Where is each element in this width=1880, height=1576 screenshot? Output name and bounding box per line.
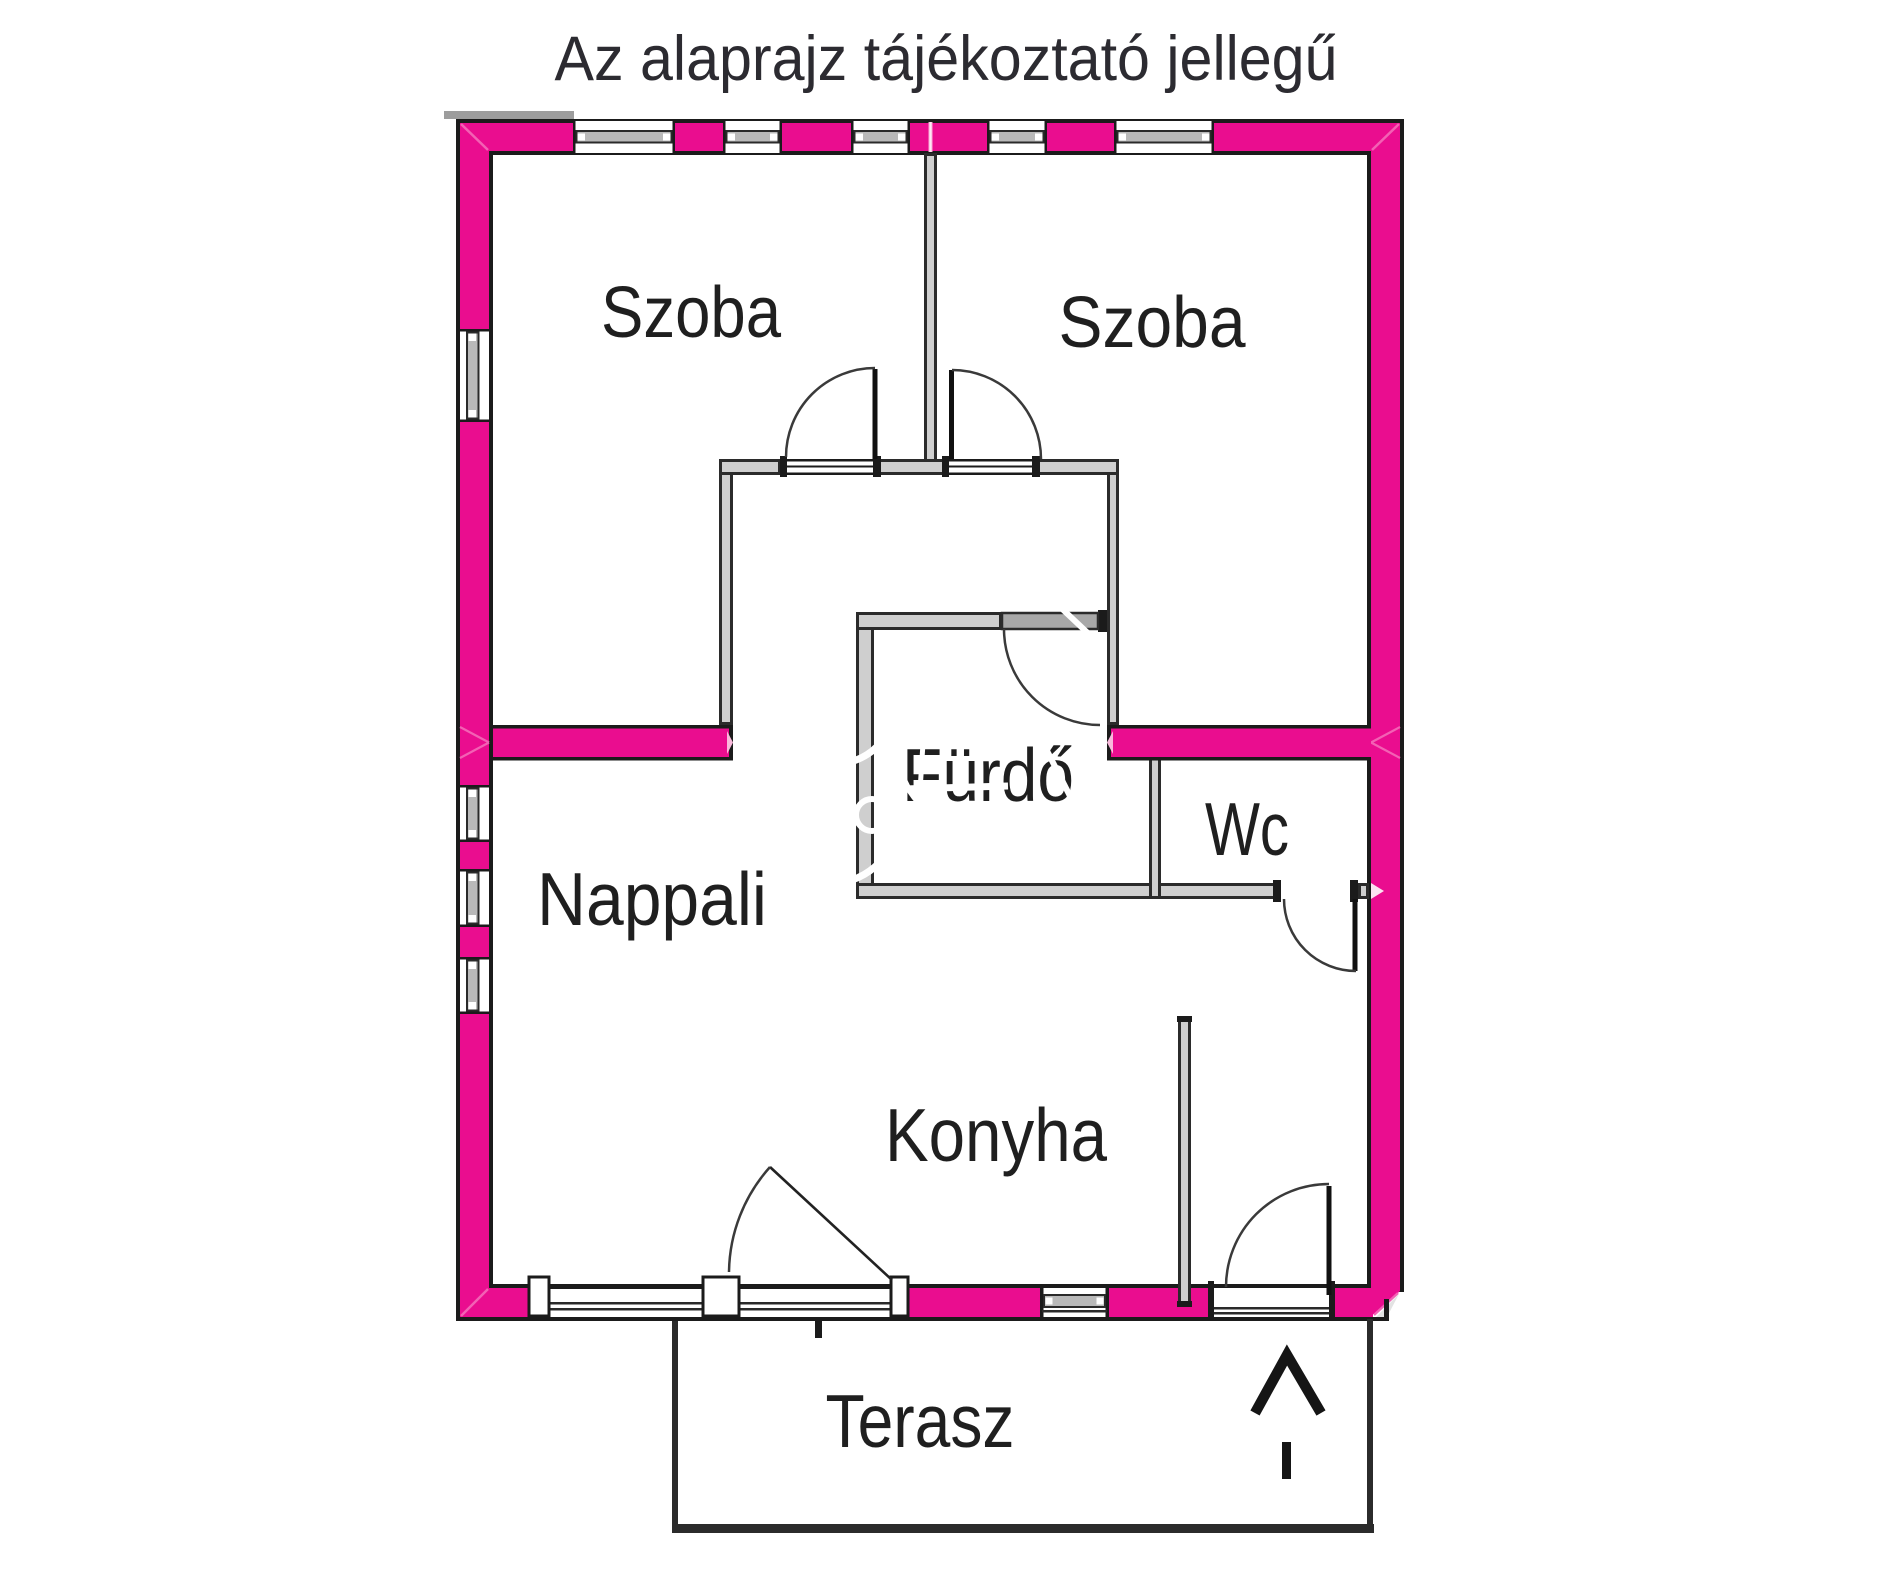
svg-text:Konyha: Konyha [885, 1093, 1107, 1177]
svg-text:Szoba: Szoba [1059, 283, 1247, 363]
svg-text:Szoba: Szoba [601, 273, 782, 353]
svg-text:Wc: Wc [1205, 787, 1289, 871]
svg-text:Fürdő: Fürdő [902, 733, 1074, 817]
svg-text:Az alaprajz tájékoztató jelleg: Az alaprajz tájékoztató jellegű [555, 24, 1338, 94]
svg-text:Terasz: Terasz [826, 1379, 1015, 1463]
svg-text:Nappali: Nappali [537, 857, 767, 941]
